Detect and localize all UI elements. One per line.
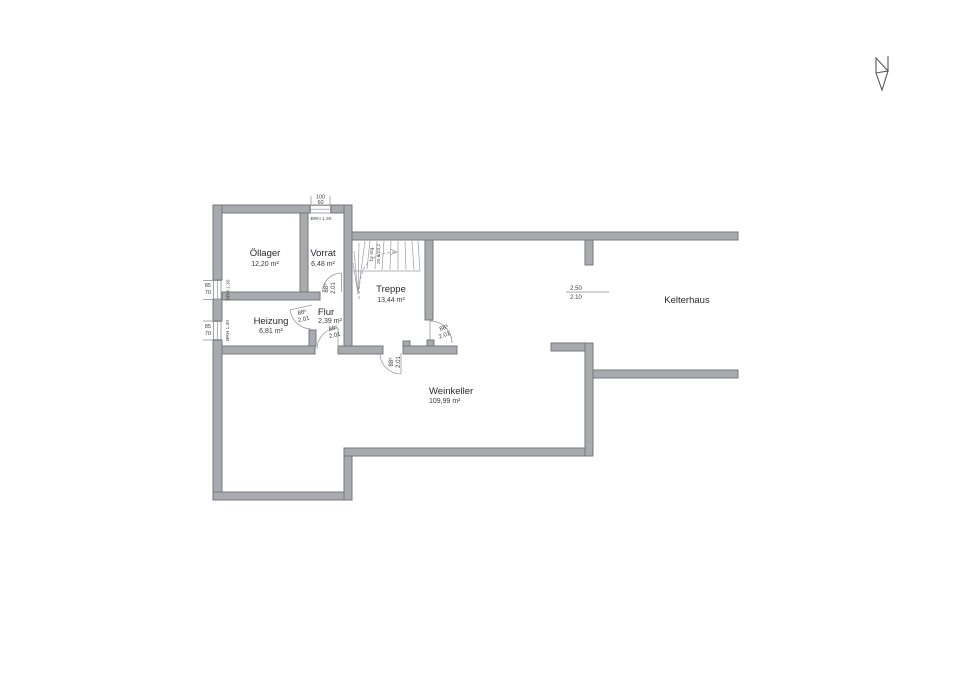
wall-segment — [213, 492, 352, 500]
door-width: 88⁵ — [388, 357, 395, 367]
room-labels: Öllager 12,20 m² Vorrat 6,48 m² Treppe 1… — [250, 248, 710, 405]
door-height: 2.01 — [396, 356, 402, 368]
wall-segment — [213, 205, 222, 280]
wall-segment — [344, 205, 352, 346]
door-treppe-weinkeller: 88⁵ 2.01 — [380, 353, 402, 374]
wall-segment — [585, 240, 593, 265]
room-label-weinkeller: Weinkeller — [429, 386, 473, 397]
room-area-weinkeller: 109,99 m² — [429, 398, 461, 405]
wall-segment — [213, 340, 222, 500]
wall-segment — [593, 370, 738, 378]
door-jamb — [403, 341, 410, 346]
door-height: 2.01 — [331, 282, 337, 294]
opening-width: 2.50 — [570, 286, 582, 292]
wall-segment — [300, 213, 308, 292]
window-brh: BRH 1.30 — [225, 320, 231, 341]
door-width: 88⁵ — [323, 283, 330, 293]
stair-dimension-label: 20,6/23,2 — [376, 244, 382, 264]
floorplan-canvas: 85 70 BRH 1.30 85 70 BRH 1.30 100 60 BRH… — [0, 0, 960, 679]
wall-segment — [222, 292, 320, 300]
room-area-vorrat: 6,48 m² — [311, 261, 335, 268]
door-height: 2.01 — [297, 316, 310, 324]
stair-count-label: 13 Stg. — [369, 246, 375, 261]
room-label-flur: Flur — [318, 307, 334, 318]
window-height: 70 — [205, 290, 211, 296]
room-label-kelterhaus: Kelterhaus — [664, 295, 710, 306]
door-flur-weinkeller: 88⁵ 2.01 — [317, 324, 342, 349]
floorplan-drawing: 85 70 BRH 1.30 85 70 BRH 1.30 100 60 BRH… — [0, 0, 960, 679]
opening-height: 2.10 — [570, 295, 582, 301]
wall-segment — [344, 448, 593, 456]
opening-annotation: 2.50 2.10 — [566, 286, 609, 301]
wall-segment — [213, 205, 310, 213]
window-left-top: 85 70 BRH 1.30 — [203, 279, 232, 300]
window-width: 85 — [205, 324, 211, 330]
window-top: 100 60 BRH 1.30 — [311, 195, 332, 223]
room-label-treppe: Treppe — [376, 284, 406, 295]
room-label-heizung: Heizung — [254, 316, 289, 327]
window-brh: BRH 1.30 — [226, 279, 232, 300]
wall-segment — [213, 299, 222, 321]
walls — [213, 205, 738, 500]
window-width: 85 — [205, 283, 211, 289]
door-leaf — [290, 305, 312, 310]
wall-segment — [585, 343, 593, 456]
north-arrow-icon — [876, 56, 888, 90]
room-area-oellager: 12,20 m² — [251, 261, 279, 268]
door-vorrat-flur: 88⁵ 2.01 — [323, 273, 342, 294]
window-brh: BRH 1.30 — [311, 216, 332, 222]
window-height: 70 — [205, 331, 211, 337]
room-area-heizung: 6,81 m² — [259, 328, 283, 335]
room-label-oellager: Öllager — [250, 248, 281, 259]
wall-segment — [425, 240, 433, 320]
window-height: 60 — [317, 200, 323, 206]
door-jamb — [427, 340, 434, 346]
wall-segment — [222, 346, 315, 354]
door-heizung-flur: 88⁵ 2.01 — [290, 305, 312, 329]
room-label-vorrat: Vorrat — [310, 248, 336, 259]
wall-segment — [309, 330, 316, 346]
window-left-bottom: 85 70 BRH 1.30 — [203, 320, 231, 341]
wall-segment — [338, 346, 383, 354]
room-area-flur: 2,39 m² — [318, 318, 342, 325]
door-height: 2.01 — [328, 332, 341, 340]
wall-segment — [551, 343, 585, 351]
room-area-treppe: 13,44 m² — [377, 297, 405, 304]
wall-segment — [403, 346, 457, 354]
wall-segment — [352, 232, 738, 240]
